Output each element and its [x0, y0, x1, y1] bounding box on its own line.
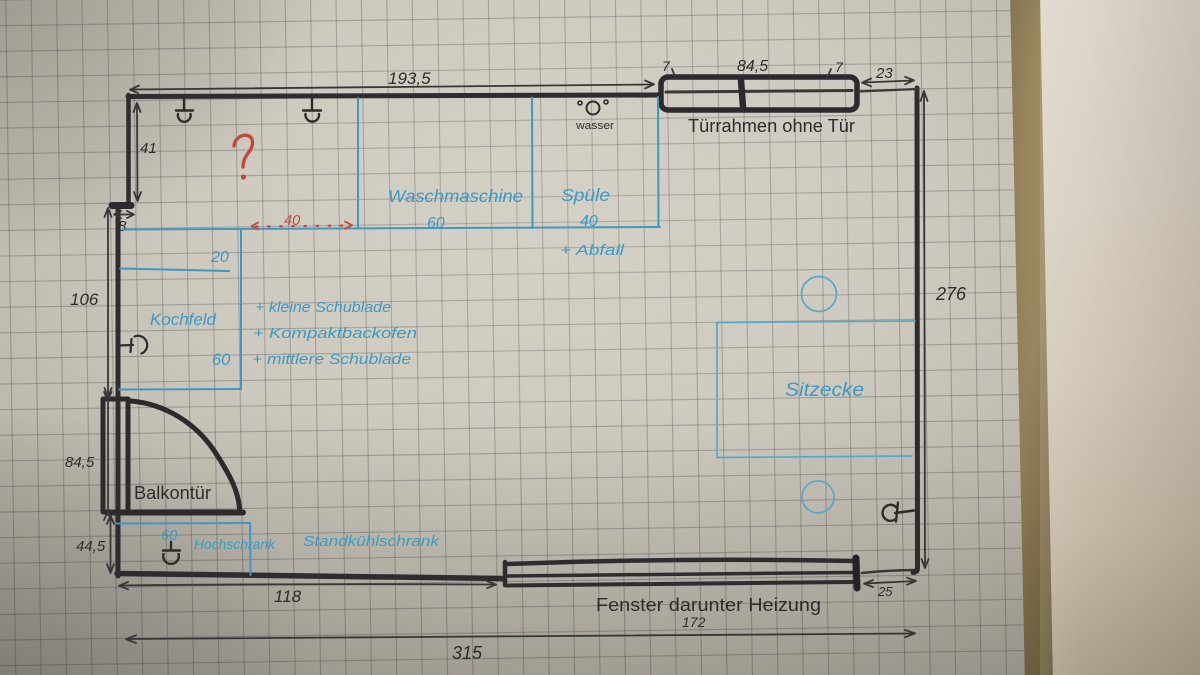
svg-text:118: 118 [274, 587, 302, 606]
svg-text:8: 8 [118, 218, 127, 235]
svg-text:44,5: 44,5 [76, 538, 106, 555]
svg-text:+ Kompaktbackofen: + Kompaktbackofen [253, 325, 417, 342]
svg-text:193,5: 193,5 [388, 69, 431, 88]
svg-text:172: 172 [682, 614, 706, 630]
svg-text:25: 25 [877, 584, 893, 599]
svg-text:wasser: wasser [575, 120, 614, 132]
svg-text:Hochschrank: Hochschrank [194, 537, 276, 552]
svg-text:41: 41 [140, 140, 157, 157]
svg-text:+ mittlere Schublade: + mittlere Schublade [252, 351, 411, 368]
svg-text:23: 23 [875, 65, 893, 82]
svg-text:+ Abfall: + Abfall [560, 243, 625, 259]
svg-text:40: 40 [580, 213, 598, 230]
svg-text:40: 40 [284, 213, 300, 229]
svg-text:Kochfeld: Kochfeld [150, 311, 217, 329]
svg-text:84,5: 84,5 [737, 58, 768, 75]
svg-text:106: 106 [70, 290, 99, 309]
svg-text:276: 276 [935, 284, 967, 304]
svg-text:Fenster darunter Heizung: Fenster darunter Heizung [596, 595, 821, 615]
svg-text:Standkühlschrank: Standkühlschrank [303, 534, 440, 550]
svg-text:20: 20 [210, 249, 229, 266]
svg-text:+ kleine Schublade: + kleine Schublade [255, 300, 391, 316]
svg-text:60: 60 [427, 215, 445, 232]
svg-text:7: 7 [662, 58, 671, 74]
svg-text:Balkontür: Balkontür [134, 483, 211, 503]
svg-text:Türrahmen ohne Tür: Türrahmen ohne Tür [688, 116, 855, 136]
svg-text:60: 60 [212, 351, 231, 369]
svg-text:84,5: 84,5 [65, 454, 95, 471]
svg-text:315: 315 [452, 643, 483, 663]
svg-text:Sitzecke: Sitzecke [785, 380, 864, 401]
svg-text:60: 60 [161, 528, 177, 544]
svg-text:7: 7 [835, 59, 844, 75]
svg-text:Spüle: Spüle [561, 185, 610, 205]
svg-text:Waschmaschine: Waschmaschine [388, 186, 523, 206]
